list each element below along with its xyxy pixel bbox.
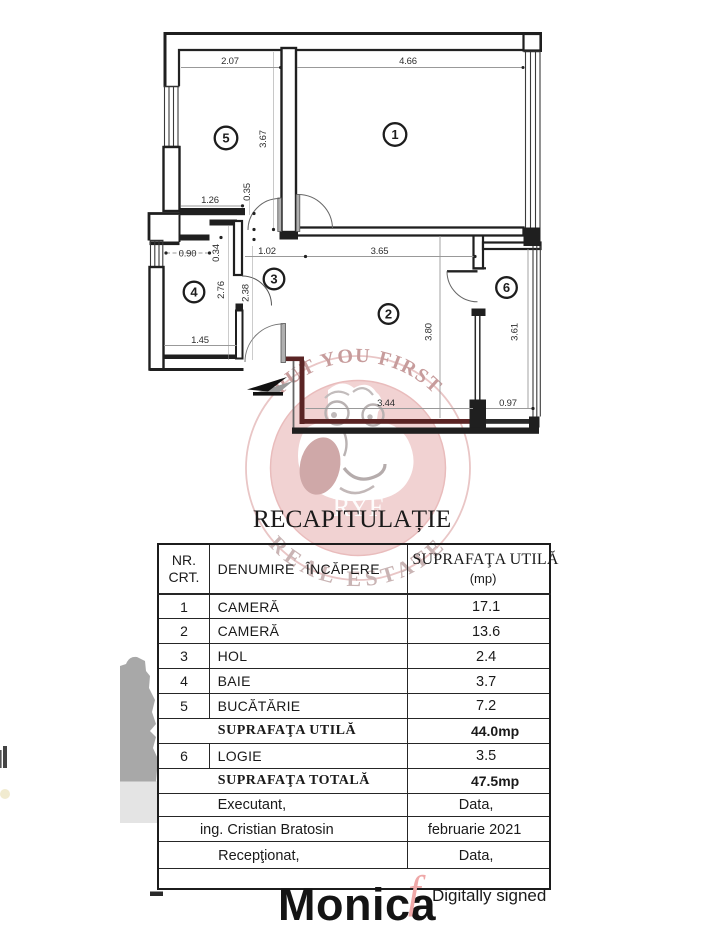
- svg-text:2.76: 2.76: [216, 281, 227, 299]
- svg-text:1.26: 1.26: [201, 195, 219, 206]
- svg-text:3: 3: [270, 272, 277, 287]
- svg-text:3.65: 3.65: [371, 246, 389, 257]
- svg-text:0.35: 0.35: [242, 183, 253, 201]
- svg-text:3.67: 3.67: [258, 130, 269, 148]
- svg-text:1.45: 1.45: [191, 335, 209, 346]
- svg-text:2.07: 2.07: [221, 56, 239, 67]
- svg-text:1.02: 1.02: [258, 246, 276, 257]
- svg-text:6: 6: [503, 280, 510, 295]
- svg-text:3.61: 3.61: [510, 323, 521, 341]
- svg-text:4: 4: [190, 285, 198, 300]
- svg-text:3.44: 3.44: [377, 398, 395, 409]
- svg-text:3.80: 3.80: [424, 323, 435, 341]
- svg-text:0.97: 0.97: [499, 398, 517, 409]
- svg-text:5: 5: [222, 131, 229, 146]
- svg-text:1: 1: [391, 127, 398, 142]
- svg-text:0.90: 0.90: [179, 249, 197, 260]
- svg-text:4.66: 4.66: [399, 56, 417, 67]
- svg-text:2: 2: [385, 307, 392, 322]
- svg-text:2.38: 2.38: [241, 284, 252, 302]
- svg-text:0.34: 0.34: [211, 244, 222, 262]
